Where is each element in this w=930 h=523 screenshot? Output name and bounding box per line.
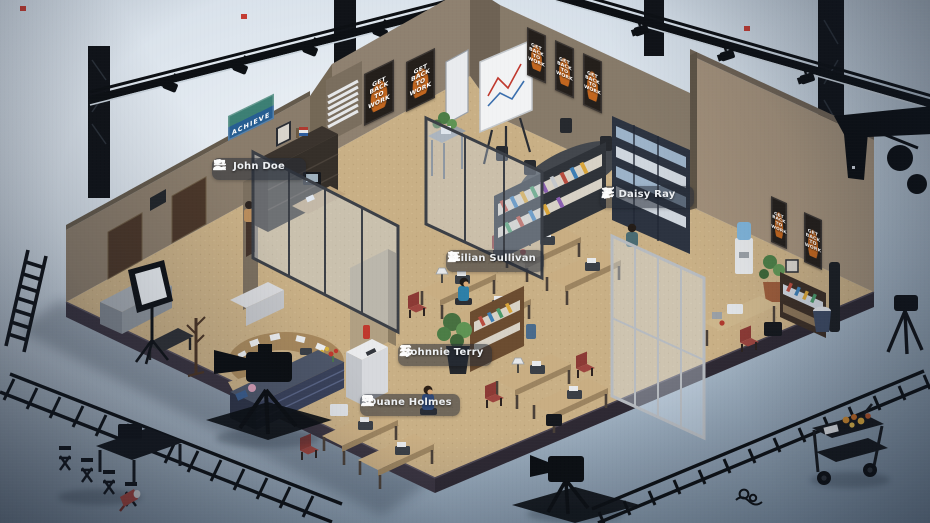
poster-get-back-to-work: GET BACK TO WORK: [527, 27, 546, 83]
character-name: John Doe: [220, 161, 298, 172]
character-name: Daisy Ray: [608, 189, 686, 200]
nameplate-duane-holmes[interactable]: Duane Holmes: [360, 394, 460, 416]
person-badge-icon[interactable]: [398, 344, 413, 357]
nameplate-johnnie-terry[interactable]: Johnnie Terry: [398, 344, 492, 366]
game-viewport: GET BACK TO WORK GET BACK TO WORK GET BA…: [0, 0, 930, 523]
character-name: Lilian Sullivan: [454, 253, 536, 264]
cable-clutter: [736, 490, 762, 505]
people-icon[interactable]: [360, 394, 375, 407]
person-badge-icon[interactable]: [446, 250, 461, 263]
poster-get-back-to-work: GET BACK TO WORK: [804, 212, 822, 270]
tripod-right: [888, 295, 922, 354]
wing-trash-bin: [813, 307, 831, 333]
water-cooler: [735, 222, 753, 274]
character-name: Duane Holmes: [368, 397, 452, 408]
poster-get-back-to-work: GET BACK TO WORK: [555, 40, 574, 98]
nameplate-daisy-ray[interactable]: Daisy Ray: [600, 186, 694, 208]
person-badge-icon[interactable]: [212, 158, 227, 171]
poster-get-back-to-work: GET BACK TO WORK: [583, 53, 602, 113]
person-badge-icon[interactable]: [600, 186, 615, 199]
nameplate-john-doe[interactable]: John Doe: [212, 158, 306, 180]
character-name: Johnnie Terry: [406, 347, 484, 358]
nameplate-lilian-sullivan[interactable]: Lilian Sullivan: [446, 250, 544, 272]
poster-get-back-to-work: GET BACK TO WORK: [771, 196, 787, 249]
